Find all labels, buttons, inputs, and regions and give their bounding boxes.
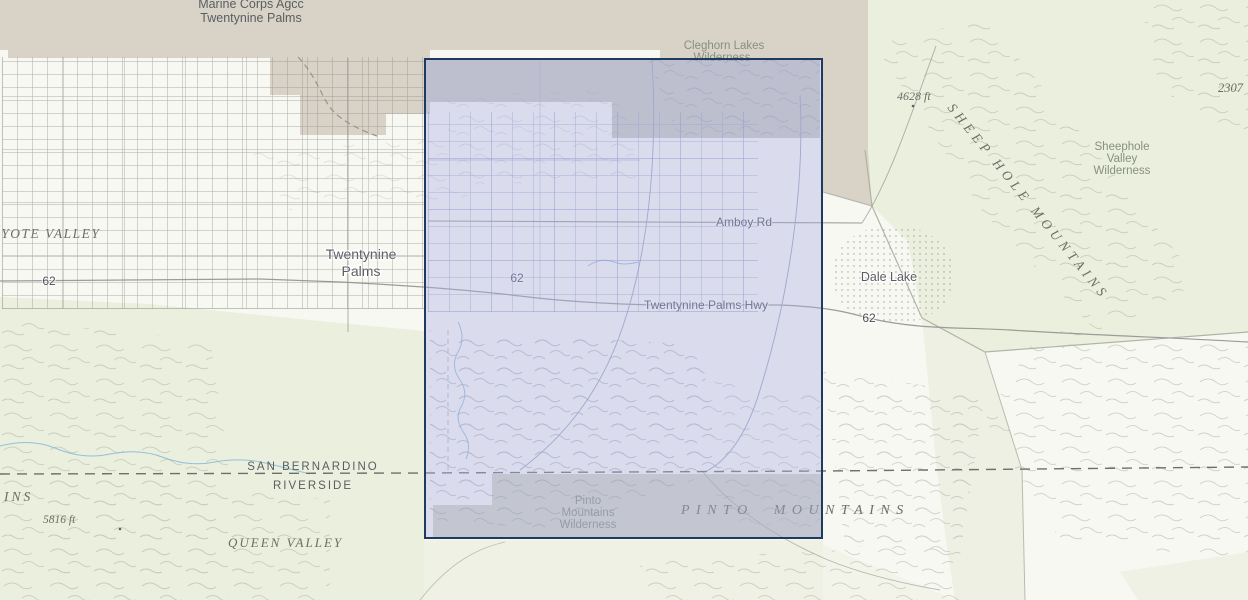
county-label-san-bernardino: SAN BERNARDINO (247, 461, 379, 473)
military-base-label-line1: Marine Corps Agcc (198, 0, 304, 11)
sheephole-valley-wilderness-label-line1: Sheephole (1095, 141, 1150, 153)
route-62-label-east: 62 (862, 311, 876, 325)
street-grid-town (2, 57, 424, 309)
sheephole-valley-wilderness-label-line2: Valley (1107, 153, 1138, 165)
military-base-label-line2: Twentynine Palms (200, 11, 301, 25)
cleghorn-wilderness-label-line1: Cleghorn Lakes (684, 40, 765, 52)
peak-marker-4628 (912, 105, 915, 108)
map-canvas[interactable]: Marine Corps Agcc Twentynine Palms Clegh… (0, 0, 1248, 600)
queen-valley-label: QUEEN VALLEY (228, 535, 343, 550)
dale-lake-label: Dale Lake (861, 270, 917, 284)
peak-marker-5816 (119, 528, 122, 531)
elevation-label-5816: 5816 ft (43, 514, 76, 526)
mountains-name-partial-label: INS (3, 489, 33, 504)
selection-rectangle[interactable] (424, 58, 823, 539)
elevation-label-4628: 4628 ft (897, 89, 931, 103)
county-label-riverside: RIVERSIDE (273, 480, 353, 492)
elevation-label-2307: 2307 (1218, 81, 1244, 95)
sheephole-valley-wilderness-label-line3: Wilderness (1094, 165, 1151, 177)
